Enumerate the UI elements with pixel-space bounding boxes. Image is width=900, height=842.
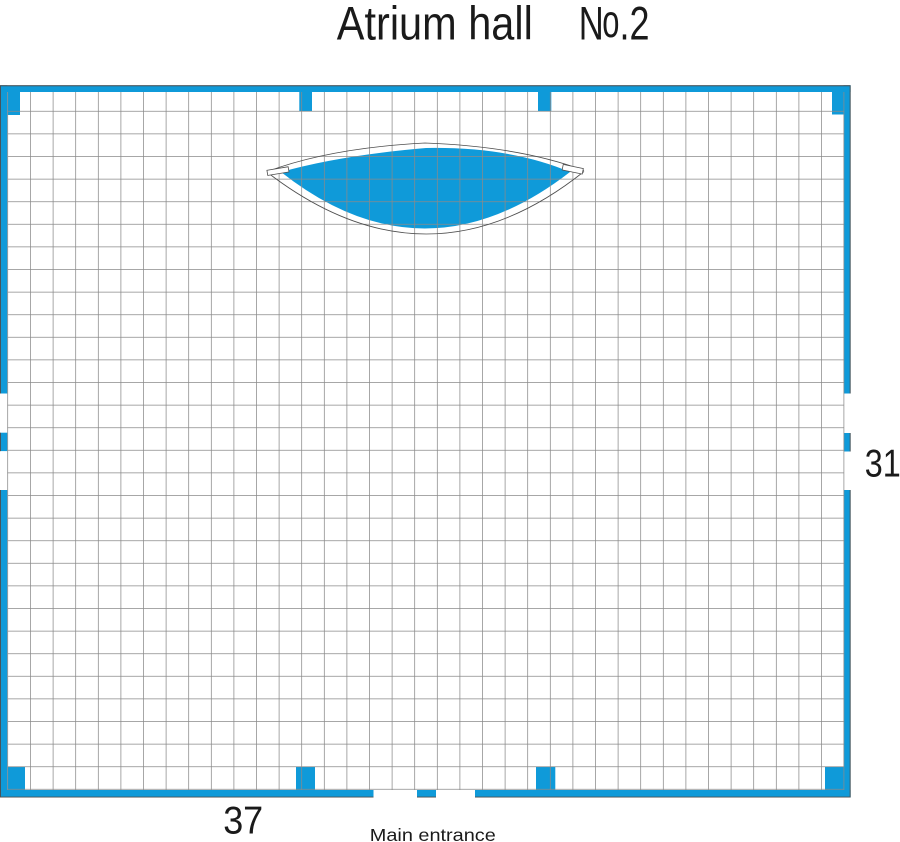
svg-text:37: 37 <box>223 799 263 842</box>
svg-text:Atrium hall: Atrium hall <box>337 0 533 50</box>
svg-text:N: N <box>579 0 604 50</box>
svg-text:Main entrance: Main entrance <box>370 825 496 842</box>
svg-text:.2: .2 <box>620 0 650 50</box>
svg-text:31: 31 <box>865 443 900 486</box>
svg-text:o: o <box>602 0 619 47</box>
